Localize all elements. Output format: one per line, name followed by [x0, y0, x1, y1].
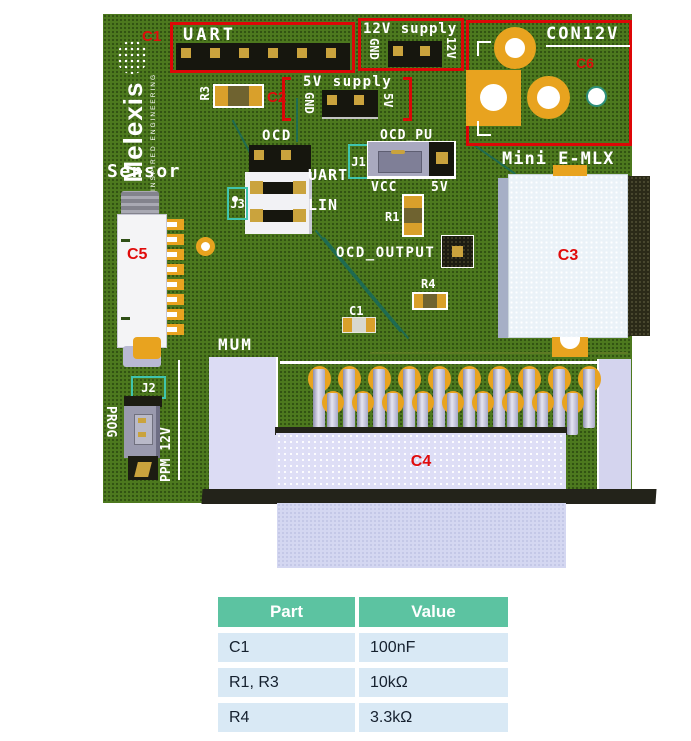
con12v-hole-pad: [494, 27, 536, 69]
silk-corner-mark: [477, 121, 491, 136]
ref-box-j3: J3: [227, 187, 248, 220]
label-12v-supply: 12V supply: [363, 22, 457, 36]
resistor-r4: [412, 292, 448, 310]
pin-detail: [210, 48, 220, 58]
pin-detail: [327, 95, 337, 105]
switch-j2-pin: [134, 462, 152, 477]
capacitor-c1: [342, 317, 376, 333]
label-5v-supply: 5V supply: [303, 75, 392, 89]
jumper-row: [250, 180, 306, 195]
pin-detail: [326, 48, 336, 58]
label-j2: J2: [141, 381, 155, 395]
pin-detail: [354, 95, 364, 105]
pin-detail: [167, 267, 177, 272]
table-cell-value: 3.3kΩ: [359, 703, 508, 732]
pin-detail: [567, 393, 578, 435]
label-5v: 5V: [382, 93, 394, 107]
switch-j1-body: [368, 142, 429, 176]
pad-gold: [553, 165, 587, 176]
table-row: C1 100nF: [218, 633, 508, 662]
label-mum: MUM: [218, 337, 253, 353]
switch-j2-bottom: [128, 456, 158, 480]
resistor-body: [423, 294, 437, 308]
silk-corner-mark: [477, 41, 491, 56]
label-lin-option: LIN: [308, 198, 338, 213]
table-row: R1, R3 10kΩ: [218, 668, 508, 697]
pin-detail: [181, 48, 191, 58]
resistor-end: [404, 223, 422, 235]
pin-detail: [268, 48, 278, 58]
melexis-logo-tagline: INSPIRED ENGINEERING: [150, 52, 157, 212]
pcb-trace: [370, 352, 628, 354]
pin: [167, 234, 184, 245]
callout-c1: C1: [142, 29, 161, 44]
table-cell-value: 10kΩ: [359, 668, 508, 697]
label-sensor: Sensor: [107, 163, 181, 181]
callout-c3: C3: [558, 248, 578, 264]
pad-gold: [133, 337, 161, 359]
label-con12v: CON12V: [546, 26, 619, 43]
con12v-hole-pad: [527, 76, 570, 119]
connector-c5-body: [117, 214, 167, 348]
jumper-pin: [250, 209, 263, 222]
connector-c5-notch: [121, 239, 130, 242]
pin: [167, 249, 184, 260]
pin-detail: [393, 46, 403, 56]
switch-j1-contact: [391, 150, 405, 154]
parts-table: Part Value C1 100nF R1, R3 10kΩ R4 3.3kΩ: [218, 597, 508, 732]
jumper-row: [250, 208, 306, 223]
capacitor-body: [352, 318, 366, 332]
jumper-bar: [263, 182, 293, 194]
label-ppm-12v: PPM 12V: [160, 392, 173, 482]
red-bracket-left: [282, 77, 291, 121]
jumper-pin: [250, 181, 263, 194]
pin: [415, 41, 442, 67]
supply-12v-pin-header: [388, 41, 442, 67]
label-r1: R1: [385, 211, 399, 223]
via-dot: [232, 196, 238, 202]
connector-c5-notch: [121, 317, 130, 320]
switch-j2-body: [124, 406, 160, 458]
label-prog: PROG: [104, 406, 117, 437]
pin-detail: [167, 252, 177, 257]
pin: [167, 324, 184, 335]
pin: [167, 264, 184, 275]
switch-j1-end: [429, 142, 454, 176]
pin-detail: [254, 150, 264, 160]
con12v-via: [586, 86, 607, 107]
callout-c6: C6: [576, 56, 594, 70]
pin-detail: [167, 297, 177, 302]
label-ocd: OCD: [262, 129, 292, 143]
pin-detail: [167, 222, 177, 227]
label-uart: UART: [183, 27, 236, 44]
connector-c4-lower: [277, 503, 566, 568]
resistor-end: [249, 86, 262, 106]
pin: [322, 90, 349, 116]
pin-detail: [281, 150, 291, 160]
melexis-logo: Melexis INSPIRED ENGINEERING: [118, 52, 162, 212]
callout-c4: C4: [411, 454, 431, 470]
pin: [167, 309, 184, 320]
jumper-pin: [293, 181, 306, 194]
pin: [234, 43, 263, 70]
label-r3: R3: [199, 86, 211, 100]
con12v-square-pad-hole: [480, 84, 507, 111]
ref-box-j1: J1: [348, 144, 369, 179]
label-12v: 12V: [445, 37, 457, 59]
resistor-body: [228, 86, 249, 106]
table-cell-part: R4: [218, 703, 355, 732]
capacitor-end: [366, 318, 375, 332]
switch-j1-pin: [436, 152, 448, 164]
pcb-trace: [296, 98, 298, 142]
pad-ring: [196, 237, 215, 256]
pin-detail: [167, 312, 177, 317]
label-uart-option: UART: [308, 168, 348, 183]
parts-table-header-row: Part Value: [218, 597, 508, 627]
pin: [205, 43, 234, 70]
label-ocd-output: OCD_OUTPUT: [336, 246, 435, 260]
table-cell-part: C1: [218, 633, 355, 662]
pin: [276, 145, 303, 171]
pin: [167, 279, 184, 290]
connector-c4-body: C4: [276, 433, 566, 491]
label-c1-cap: C1: [349, 305, 363, 317]
table-cell-value: 100nF: [359, 633, 508, 662]
resistor-body: [404, 208, 422, 223]
pcb-annotation-figure: Melexis INSPIRED ENGINEERING C1 UART 12V…: [0, 0, 691, 741]
label-vcc: VCC: [371, 181, 397, 194]
label-r4: R4: [421, 278, 435, 290]
connector-c4-left-post: [209, 357, 278, 497]
resistor-end: [437, 294, 446, 308]
melexis-logo-dots: [117, 40, 147, 74]
pin: [167, 294, 184, 305]
capacitor-end: [343, 318, 352, 332]
switch-j2-contact: [138, 432, 146, 437]
label-5v-j1: 5V: [431, 181, 449, 194]
pin-detail: [239, 48, 249, 58]
pin: [263, 43, 292, 70]
ocd-pin-header: [249, 145, 311, 172]
switch-j2-contact: [138, 418, 146, 423]
board-bottom-edge: [201, 489, 656, 504]
pin-detail: [297, 48, 307, 58]
label-gnd-5v: GND: [303, 92, 315, 114]
switch-j1: [367, 141, 456, 179]
pin: [176, 43, 205, 70]
parts-table-header-part: Part: [218, 597, 355, 627]
connector-c5-pins: [167, 219, 184, 335]
red-bracket-right: [403, 77, 412, 121]
supply-5v-pin-header: [322, 90, 378, 119]
pin: [167, 219, 184, 230]
resistor-end: [414, 294, 423, 308]
resistor-end: [404, 196, 422, 208]
pin-detail: [167, 327, 177, 332]
table-row: R4 3.3kΩ: [218, 703, 508, 732]
pin: [388, 41, 415, 67]
label-j1: J1: [351, 155, 365, 169]
module-c3-body: C3: [508, 174, 628, 338]
ocd-output-pin: [441, 235, 474, 268]
connector-c4-topline: [280, 361, 630, 364]
label-gnd-12v: GND: [368, 38, 380, 60]
resistor-end: [215, 86, 228, 106]
pin-detail: [167, 282, 177, 287]
uart-pin-header: [176, 43, 350, 70]
melexis-logo-wordmark: Melexis: [118, 52, 149, 212]
table-cell-part: R1, R3: [218, 668, 355, 697]
pin: [321, 43, 350, 70]
pin: [292, 43, 321, 70]
switch-j2-slider: [134, 414, 153, 445]
jumper-pin: [293, 209, 306, 222]
pin-detail: [167, 237, 177, 242]
con12v-underline: [546, 45, 630, 47]
pin-gold: [452, 246, 463, 257]
pin: [349, 90, 376, 116]
pin: [249, 145, 276, 171]
pin-detail: [420, 46, 430, 56]
callout-c5: C5: [127, 247, 147, 263]
parts-table-header-value: Value: [359, 597, 508, 627]
jumper-bar: [263, 210, 293, 222]
silk-divider-line: [178, 360, 180, 480]
switch-j1-slider: [378, 151, 422, 173]
resistor-r1: [402, 194, 424, 237]
resistor-r3: [213, 84, 264, 108]
